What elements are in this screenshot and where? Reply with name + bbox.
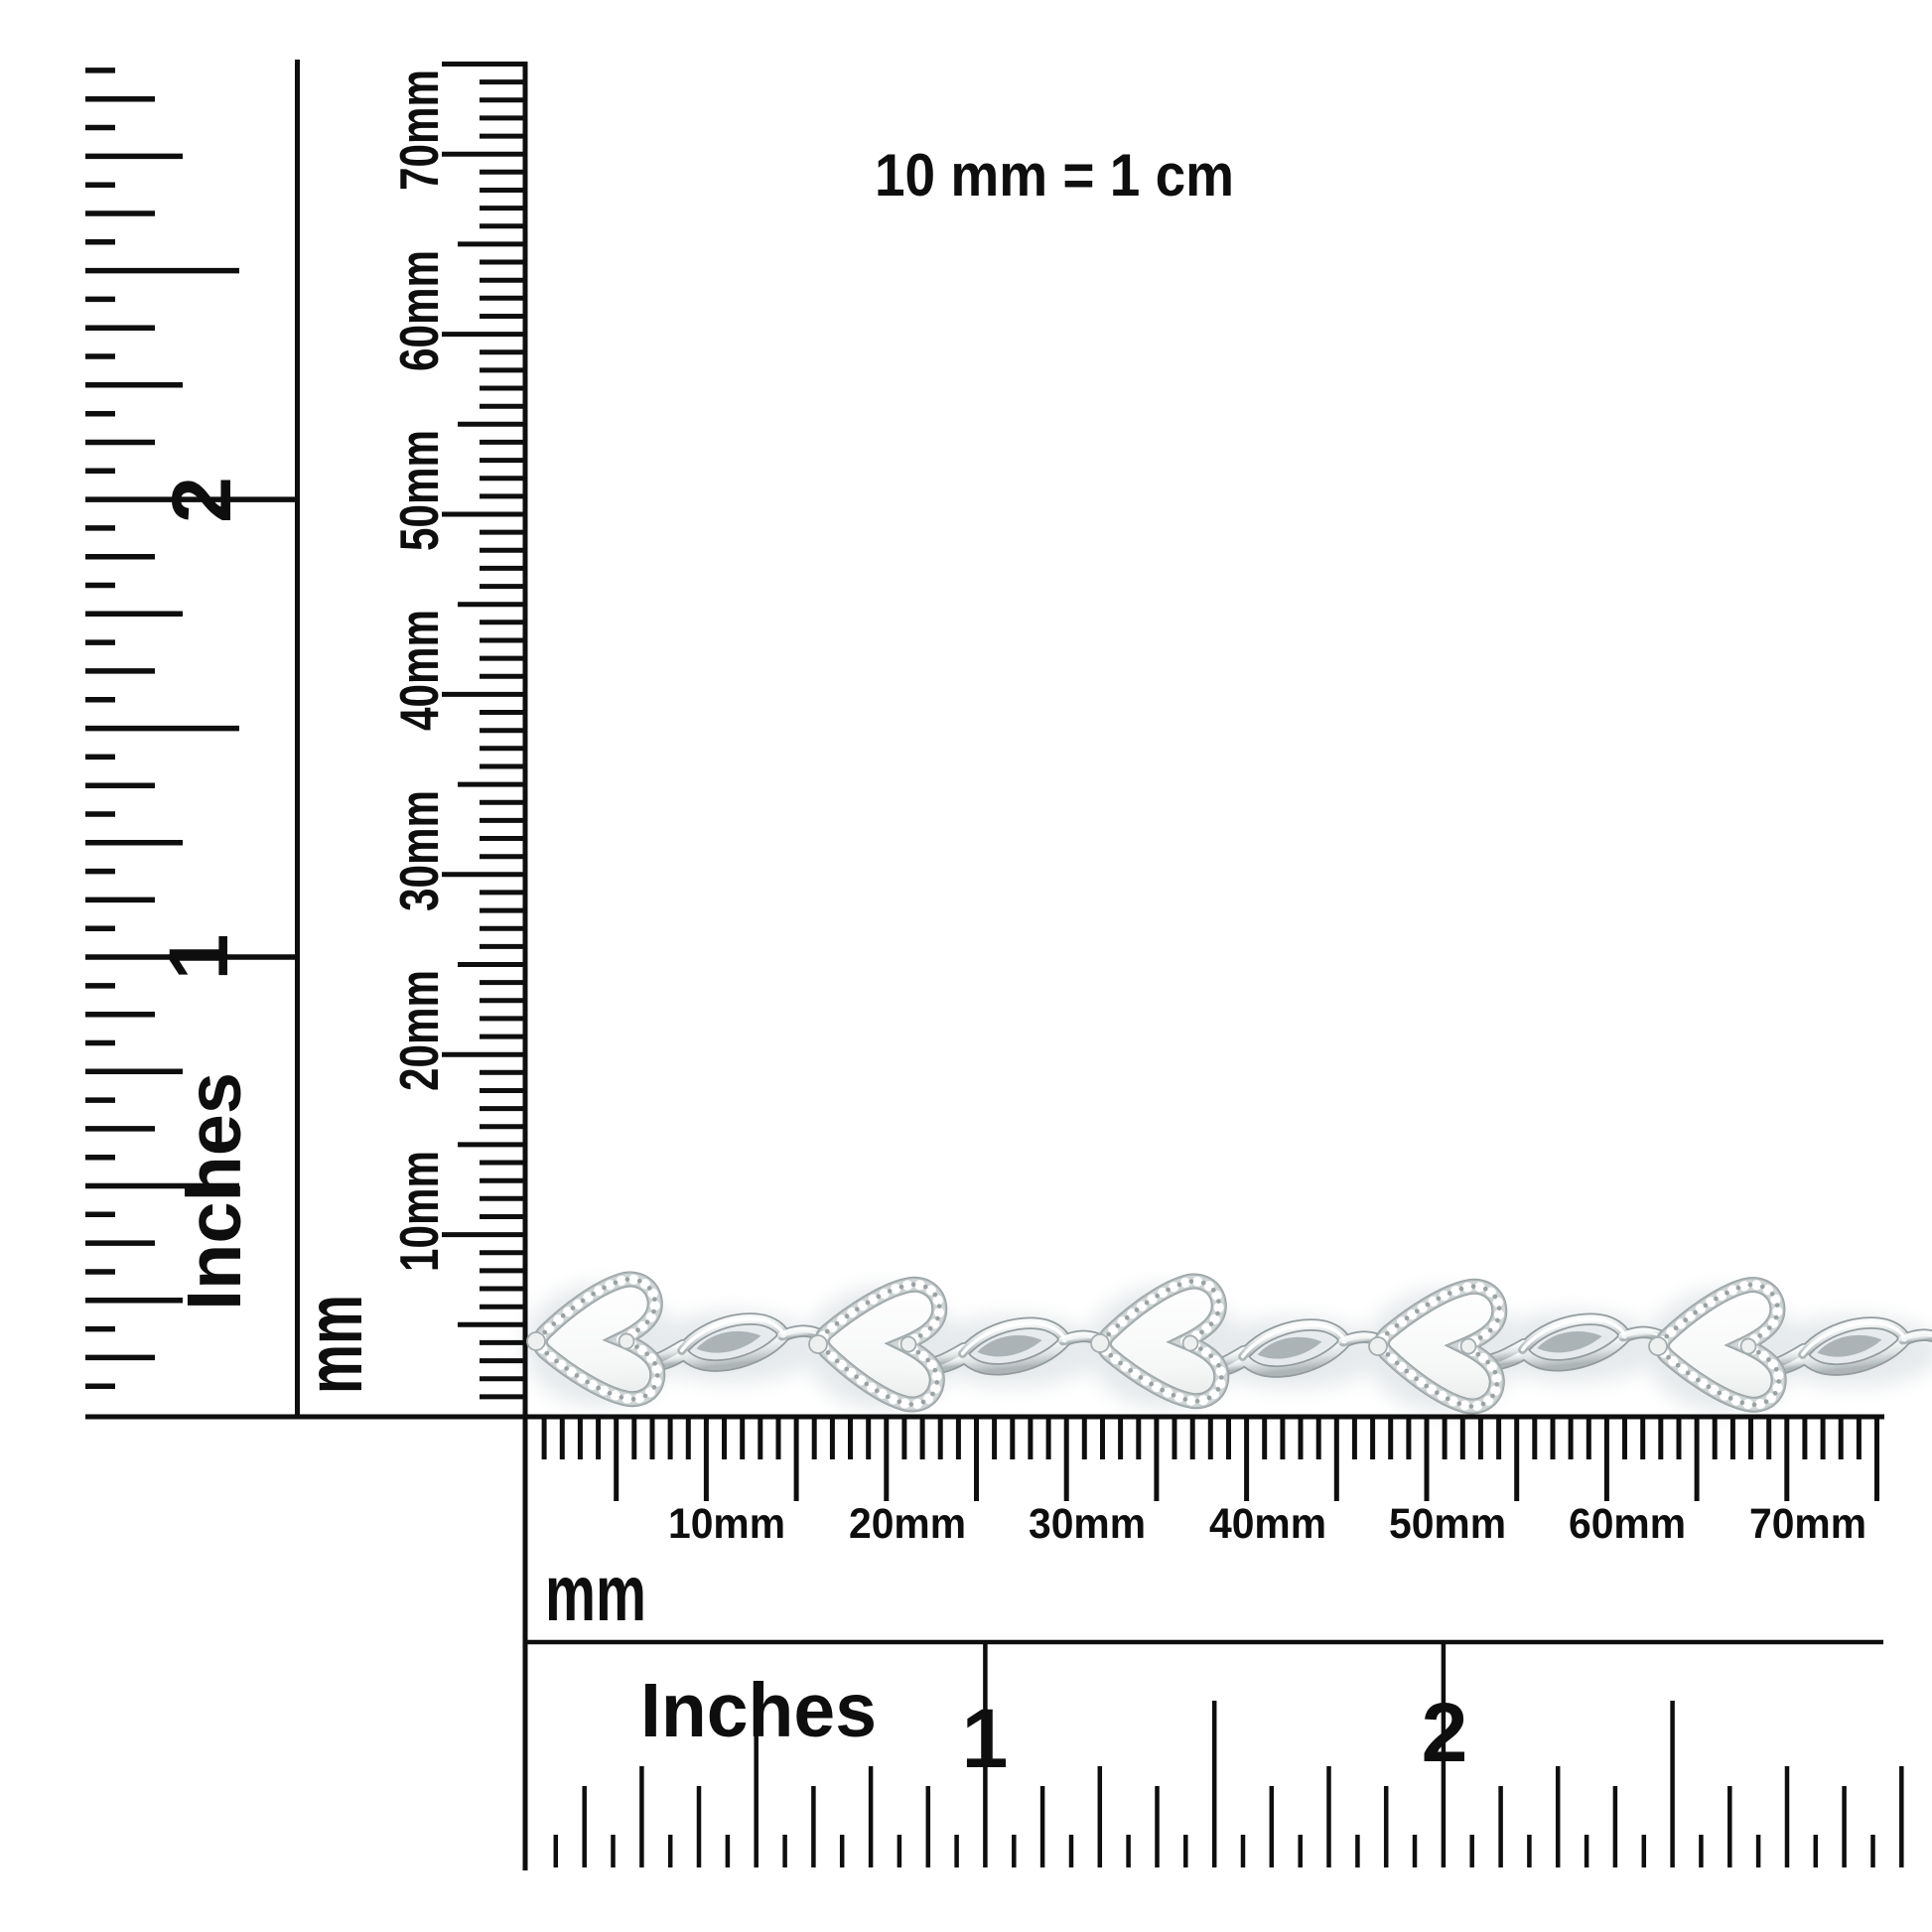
svg-text:60mm: 60mm	[388, 250, 450, 371]
svg-text:70mm: 70mm	[1749, 1500, 1866, 1548]
svg-text:20mm: 20mm	[388, 970, 450, 1091]
svg-text:30mm: 30mm	[388, 790, 450, 911]
svg-text:70mm: 70mm	[388, 69, 450, 191]
svg-text:2: 2	[1422, 1686, 1468, 1779]
svg-text:mm: mm	[290, 1295, 378, 1394]
svg-text:40mm: 40mm	[1209, 1500, 1326, 1548]
svg-text:30mm: 30mm	[1029, 1500, 1146, 1548]
svg-text:50mm: 50mm	[388, 430, 450, 551]
svg-text:mm: mm	[545, 1549, 646, 1637]
svg-text:10mm: 10mm	[668, 1500, 785, 1548]
svg-text:50mm: 50mm	[1389, 1500, 1506, 1548]
svg-text:10 mm = 1 cm: 10 mm = 1 cm	[875, 142, 1234, 208]
svg-text:40mm: 40mm	[388, 610, 450, 731]
svg-text:1: 1	[152, 934, 245, 981]
svg-text:Inches: Inches	[640, 1668, 877, 1753]
svg-text:Inches: Inches	[172, 1072, 257, 1311]
svg-text:20mm: 20mm	[849, 1500, 966, 1548]
svg-text:60mm: 60mm	[1569, 1500, 1686, 1548]
svg-text:10mm: 10mm	[388, 1151, 450, 1272]
svg-text:1: 1	[962, 1692, 1009, 1785]
svg-text:2: 2	[155, 477, 248, 523]
